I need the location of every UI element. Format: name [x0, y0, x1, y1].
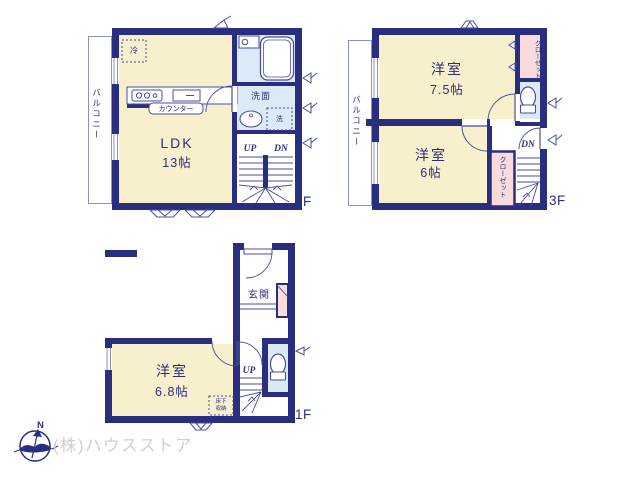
toilet-1f-fixture — [271, 354, 286, 380]
storage-line1: 床下 — [215, 399, 226, 405]
label-ldk-size: 13帖 — [162, 157, 191, 170]
compass-n-label: N — [37, 421, 44, 431]
company-name: (株)ハウスストア — [53, 438, 193, 455]
stairs-2f — [239, 155, 293, 203]
compass-icon — [14, 429, 58, 461]
label-up-1f: UP — [243, 367, 256, 377]
label-balcony-3f: バルコニー — [352, 95, 361, 148]
label-floor-2f: 2F — [295, 195, 312, 209]
entrance-step — [240, 304, 276, 309]
wash-basin — [240, 111, 262, 127]
label-floor-1f: 1F — [295, 408, 312, 422]
floorplan-drawing — [0, 0, 640, 480]
label-up-2f: UP — [244, 145, 257, 155]
stairs-3f — [517, 158, 540, 206]
room-yoshitsu-75 — [379, 35, 515, 119]
label-floor-3f: 3F — [549, 194, 566, 208]
label-room-name-1f: 洋室 — [156, 364, 188, 378]
storage-line2: 収納 — [215, 406, 226, 412]
label-fridge: 冷 — [130, 47, 138, 55]
windows-1f — [105, 348, 112, 370]
floor-plan-1f — [105, 243, 310, 430]
label-balcony-2f: バルコニー — [92, 88, 101, 141]
stairs-1f — [240, 378, 262, 413]
label-counter: カウンター — [159, 106, 194, 113]
label-washroom: 洗面 — [251, 92, 271, 101]
label-room1-size-3f: 7.5帖 — [430, 84, 464, 97]
room-yoshitsu-6 — [379, 126, 487, 203]
label-closet1: クローゼット — [519, 40, 539, 79]
floorplan-page: LDK 13帖 バルコニー 冷 カウンター 洗面 洗 UP DN 2F バルコニ… — [0, 0, 640, 480]
label-room2-name-3f: 洋室 — [415, 148, 447, 162]
label-underfloor-storage: 床下 収納 — [212, 399, 230, 414]
toilet-3f-fixture — [521, 87, 536, 113]
label-dn-3f: DN — [521, 141, 535, 151]
room-ldk — [119, 35, 232, 203]
shoe-cabinet — [277, 284, 288, 317]
label-washer: 洗 — [276, 116, 283, 123]
label-dn-2f: DN — [274, 145, 288, 155]
label-room-size-1f: 6.8帖 — [155, 386, 189, 399]
label-entrance: 玄関 — [248, 291, 270, 301]
label-room2-size-3f: 6帖 — [420, 167, 441, 180]
door-hall-1f — [239, 342, 262, 365]
label-room1-name-3f: 洋室 — [431, 62, 463, 76]
entrance-door — [244, 243, 272, 278]
label-closet2: クローゼット — [499, 156, 506, 204]
label-ldk-name: LDK — [160, 136, 193, 150]
